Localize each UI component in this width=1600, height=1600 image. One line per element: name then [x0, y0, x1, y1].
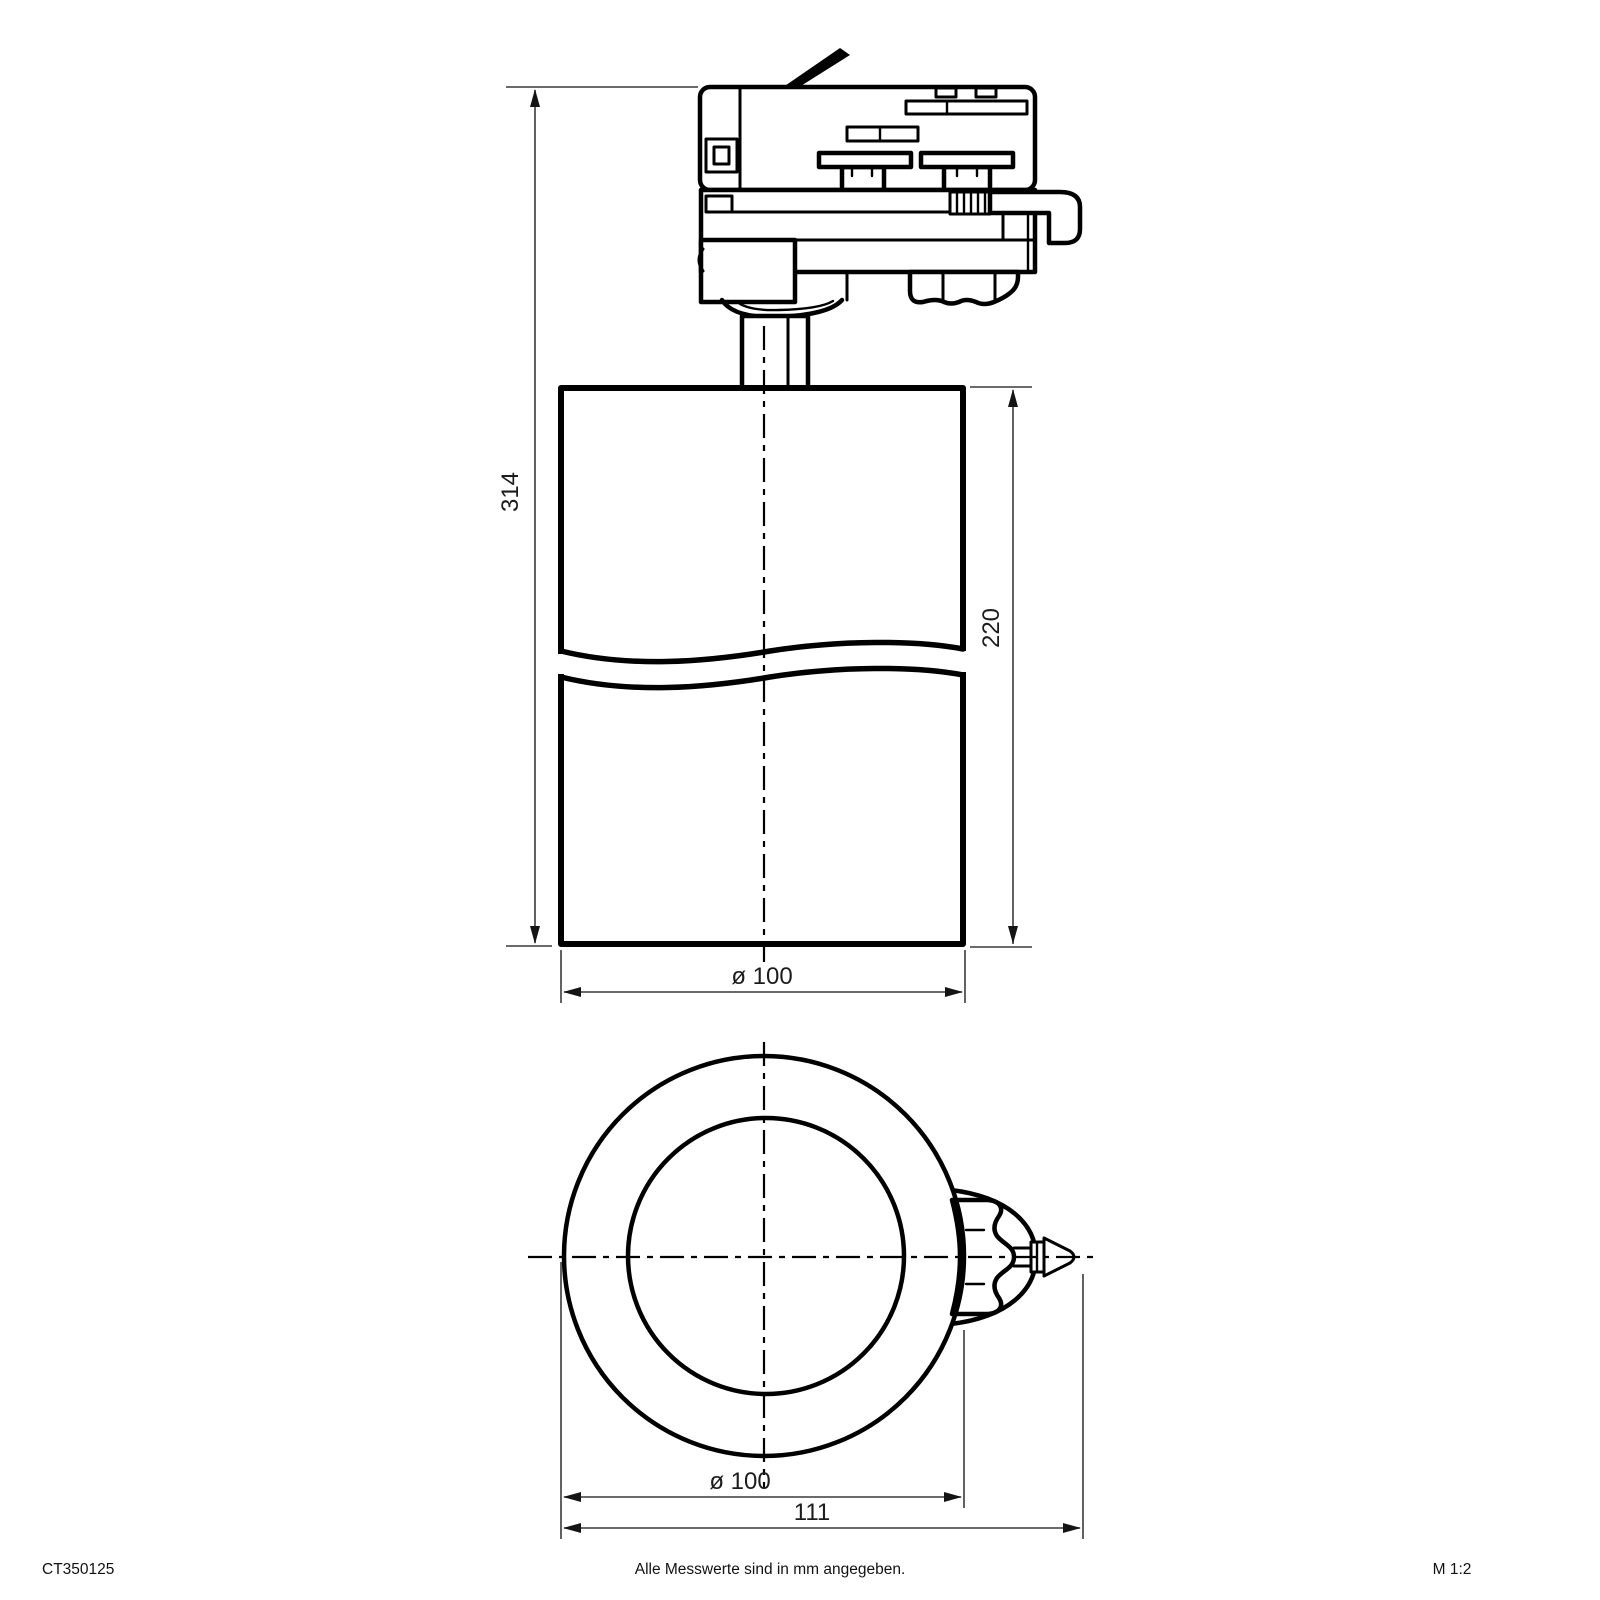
dimension-label-diameter-front: ø 100 [709, 1468, 770, 1495]
lamp-body-lower [561, 675, 963, 944]
band-left-window [706, 196, 732, 212]
technical-drawing-page: 314 220 ø 100 [0, 0, 1600, 1600]
arrowhead-right [1063, 1523, 1081, 1533]
knob-outline [910, 272, 1018, 304]
arrowhead-left [563, 1492, 581, 1502]
contact-bar-long [906, 101, 1027, 114]
locking-knob-side [910, 272, 1018, 304]
dimensional-drawing: 314 220 ø 100 [0, 0, 1600, 1600]
measurement-note: Alle Messwerte sind in mm angegeben. [635, 1561, 906, 1578]
arrowhead-right [944, 1492, 962, 1502]
dimension-label-body-height: 220 [978, 608, 1005, 648]
lamp-body-upper [561, 388, 963, 651]
arrowhead-up [1008, 389, 1018, 407]
contact-nib-left [936, 88, 956, 97]
contact-nib-right [976, 88, 996, 97]
arrowhead-up [530, 89, 540, 107]
product-code: CT350125 [42, 1561, 114, 1578]
arrowhead-left [563, 987, 581, 997]
dimension-label-diameter-side: ø 100 [731, 963, 792, 990]
stem [742, 316, 808, 388]
pivot-block [701, 240, 795, 302]
contact-stem [842, 167, 884, 190]
dimension-body-height: 220 [970, 387, 1032, 947]
footer: CT350125 Alle Messwerte sind in mm angeg… [42, 1561, 1471, 1578]
contact-bar-middle [847, 127, 918, 141]
contact-bar [819, 153, 911, 167]
phase-selector-inner [714, 147, 729, 164]
contact-stem [944, 167, 990, 190]
lamp-body [561, 388, 963, 944]
arrowhead-left [563, 1523, 581, 1533]
front-view [528, 1042, 1094, 1488]
arrowhead-down [1008, 926, 1018, 944]
side-view [561, 48, 1080, 962]
arrowhead-right [945, 987, 963, 997]
arrowhead-down [530, 926, 540, 944]
scale-label: M 1:2 [1433, 1561, 1472, 1578]
dimension-label-total-height: 314 [497, 472, 524, 512]
ribbed-adjuster [950, 192, 990, 214]
dimension-label-overall-width: 111 [794, 1499, 830, 1526]
contact-bar [921, 153, 1013, 167]
